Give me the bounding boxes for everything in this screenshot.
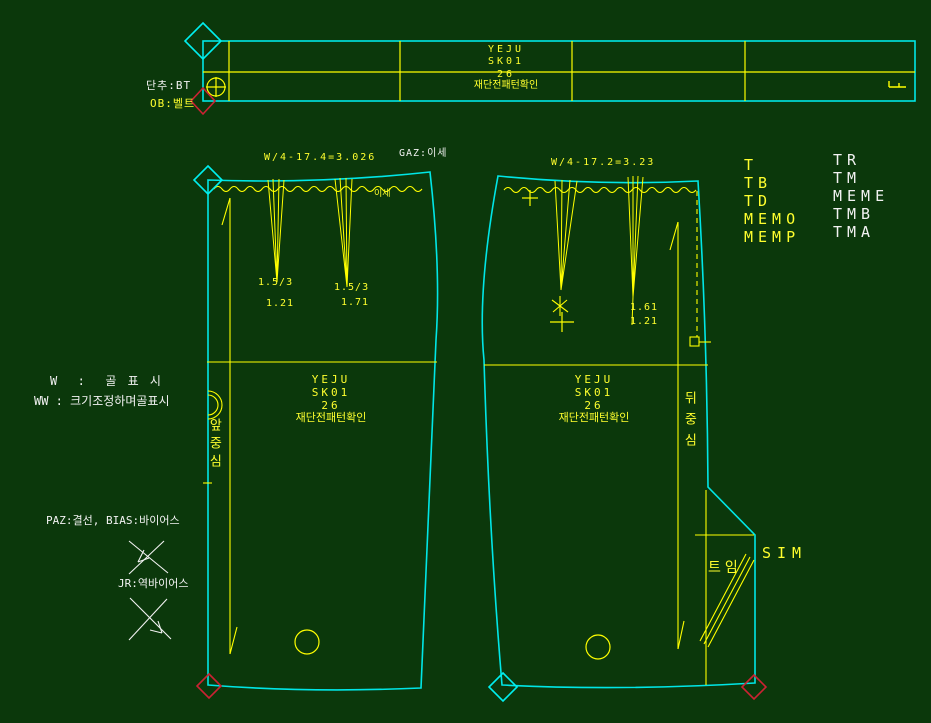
cad-canvas: 단추:BT OB:벨트 YEJU SK01 26 재단전패턴확인 W/4-17.… (0, 0, 931, 723)
back-piece-title-line: YEJU (575, 374, 614, 386)
menu-item[interactable]: TMB (833, 205, 889, 223)
grain-line (222, 198, 237, 654)
front-piece-title-line: SK01 (312, 387, 351, 399)
menu-item[interactable]: TR (833, 151, 889, 169)
menu-item[interactable]: MEME (833, 187, 889, 205)
grade-diamond-icon[interactable] (742, 675, 766, 699)
bias-x-mark-icon (129, 541, 168, 574)
band-title-line: SK01 (488, 56, 524, 67)
star-marker-icon (552, 296, 568, 316)
waist-formula-back: W/4-17.2=3.23 (551, 157, 655, 168)
notch-arc-icon (208, 391, 222, 419)
back-piece-title-line: 재단전패턴확인 (559, 412, 630, 424)
back-piece-title-line: SK01 (575, 387, 614, 399)
front-skirt-piece[interactable] (203, 172, 438, 690)
waist-formula-front: W/4-17.4=3.026 (264, 152, 376, 163)
menu-item[interactable]: T (744, 156, 800, 174)
dart-value-label: 1.61 (630, 302, 658, 313)
dart-value-label: 1.5/3 (334, 282, 369, 293)
paz-bias-legend: PAZ:결선, BIAS:바이어스 (46, 515, 180, 527)
fold-end-square-icon (690, 337, 699, 346)
reverse-bias-x-mark-icon (129, 598, 171, 640)
dart-value-label: 1.5/3 (258, 277, 293, 288)
band-title-line: 재단전패턴확인 (474, 80, 538, 91)
fold-legend-w: W : 골 표 시 (50, 375, 163, 388)
vent-label: 트임 (708, 561, 742, 576)
dart (555, 180, 577, 290)
sim-label: SIM (762, 545, 807, 562)
front-piece-title-line: YEJU (312, 374, 351, 386)
cad-drawing-layer (0, 0, 931, 723)
command-menu-yellow: T TB TD MEMO MEMP (744, 156, 800, 246)
grade-diamond-icon[interactable] (489, 673, 517, 701)
button-circle-icon[interactable] (586, 635, 610, 659)
ease-label: 이세 (374, 190, 391, 200)
dart-value-label: 1.21 (266, 298, 294, 309)
jr-legend: JR:역바이어스 (118, 578, 188, 590)
cross-marker-icon (522, 190, 538, 206)
menu-item[interactable]: TB (744, 174, 800, 192)
dart-value-label: 1.71 (341, 297, 369, 308)
band-title-line: YEJU (488, 44, 524, 55)
band-title-line: 26 (497, 69, 515, 80)
menu-item[interactable]: MEMO (744, 210, 800, 228)
dart (335, 178, 352, 287)
menu-item[interactable]: TM (833, 169, 889, 187)
fold-legend-ww: WW : 크기조정하며골표시 (34, 395, 169, 408)
menu-item[interactable]: TD (744, 192, 800, 210)
dart-value-label: 1.21 (630, 316, 658, 327)
command-menu-white: TR TM MEME TMB TMA (833, 151, 889, 241)
menu-item[interactable]: TMA (833, 223, 889, 241)
waistband-piece[interactable] (203, 41, 915, 101)
gaz-ease-label: GAZ:이세 (399, 148, 447, 159)
center-front-label: 앞중심 (206, 418, 220, 472)
dart (268, 179, 284, 282)
front-piece-title-line: 재단전패턴확인 (296, 412, 367, 424)
button-circle-icon[interactable] (295, 630, 319, 654)
button-legend-label: 단추:BT (146, 80, 191, 92)
menu-item[interactable]: MEMP (744, 228, 800, 246)
center-back-label: 뒤중심 (681, 391, 695, 454)
belt-legend-label: OB:벨트 (150, 98, 195, 110)
ease-zigzag (504, 188, 696, 193)
cross-marker-icon (550, 312, 574, 332)
band-end-notch-icon (889, 81, 906, 87)
back-skirt-piece[interactable] (482, 176, 755, 688)
vent-lines (695, 490, 754, 685)
